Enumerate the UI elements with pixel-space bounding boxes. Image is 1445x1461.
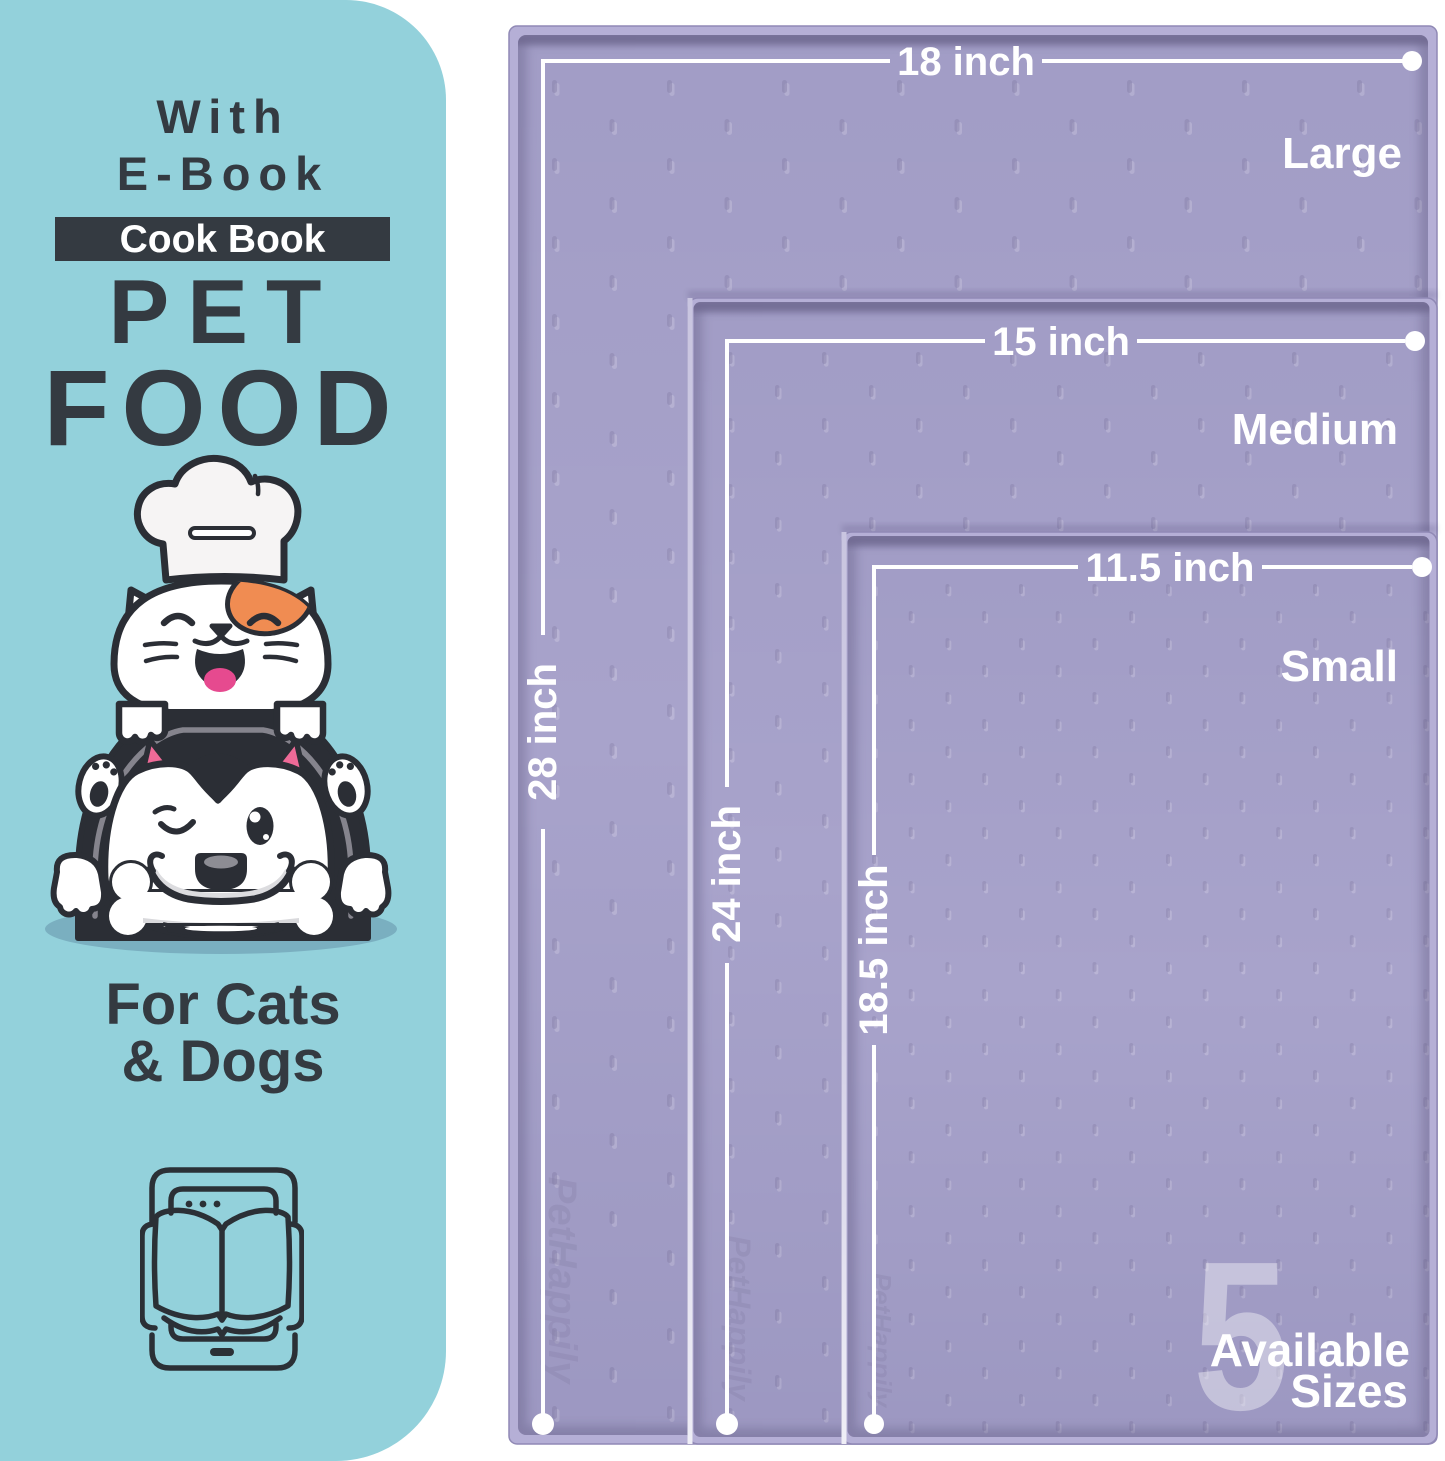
svg-text:Small: Small: [1281, 642, 1398, 691]
svg-text:Large: Large: [1282, 129, 1402, 178]
svg-text:28 inch: 28 inch: [521, 663, 565, 801]
svg-text:18 inch: 18 inch: [897, 40, 1035, 84]
svg-text:24 inch: 24 inch: [705, 805, 749, 943]
svg-text:Sizes: Sizes: [1290, 1365, 1408, 1417]
svg-text:15 inch: 15 inch: [992, 320, 1130, 364]
svg-text:Medium: Medium: [1232, 405, 1398, 454]
svg-text:18.5 inch: 18.5 inch: [852, 864, 896, 1035]
svg-text:11.5 inch: 11.5 inch: [1086, 546, 1255, 590]
svg-text:PetHappily: PetHappily: [867, 1273, 897, 1409]
svg-text:PetHappily: PetHappily: [540, 1177, 584, 1385]
